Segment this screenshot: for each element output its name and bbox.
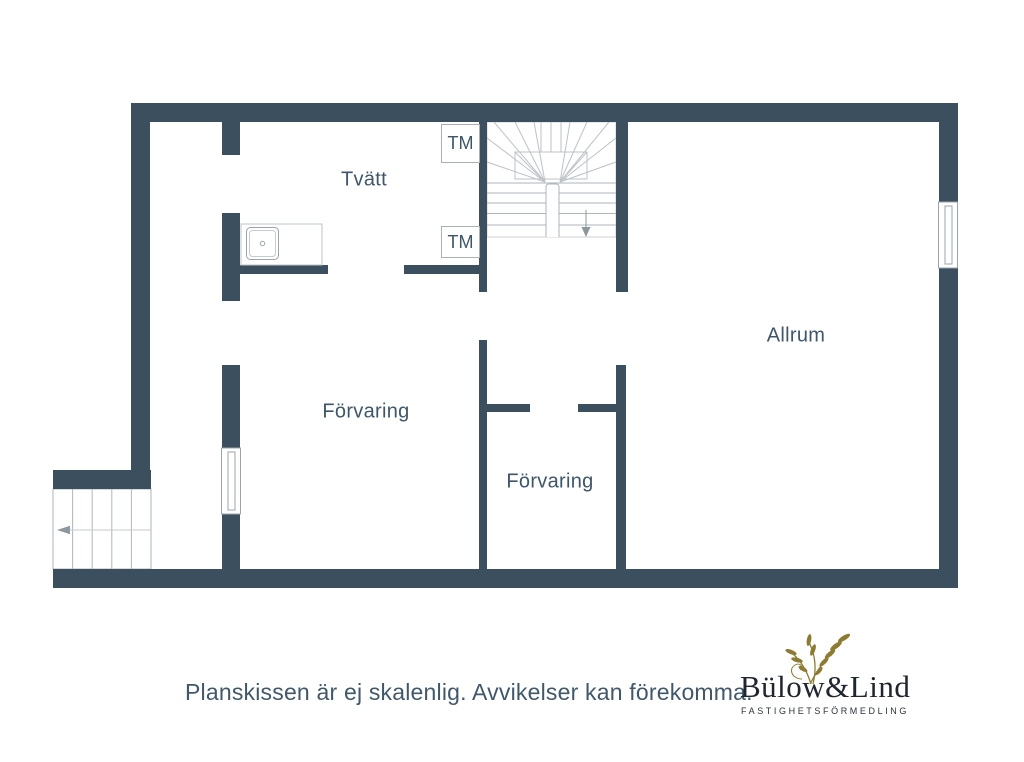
wall-storage-right bbox=[616, 365, 626, 569]
wall-stairwell-left bbox=[479, 122, 487, 292]
room-label-allrum: Allrum bbox=[767, 325, 825, 348]
wall-storage-stub-left bbox=[487, 404, 530, 412]
wall-left bbox=[131, 122, 150, 470]
exterior-staircase bbox=[53, 489, 151, 569]
stair-divider bbox=[546, 184, 559, 237]
wall-below-sink bbox=[222, 265, 328, 274]
wall-bottom bbox=[53, 569, 958, 588]
laundry-sink bbox=[241, 224, 322, 265]
brand-logo: Bülow&Lind FASTIGHETSFÖRMEDLING bbox=[738, 626, 898, 724]
brand-tagline: FASTIGHETSFÖRMEDLING bbox=[741, 706, 897, 716]
wall-right-lower bbox=[939, 268, 958, 569]
window-symbol-right bbox=[939, 202, 958, 268]
wall-inner-left-1 bbox=[222, 213, 240, 301]
window-symbol-left bbox=[222, 448, 241, 514]
wall-right-upper bbox=[939, 122, 958, 202]
wall-inner-left-2 bbox=[222, 365, 240, 448]
washing-machine-label: TM bbox=[448, 133, 474, 154]
room-label-tvatt: Tvätt bbox=[341, 169, 387, 192]
room-label-forvaring-middle: Förvaring bbox=[506, 471, 593, 494]
wall-inner-left-3 bbox=[222, 514, 240, 569]
brand-name: Bülow&Lind bbox=[740, 669, 896, 705]
wall-left-of-stairs bbox=[404, 265, 480, 274]
wall-top bbox=[131, 103, 958, 122]
main-staircase bbox=[487, 122, 616, 237]
washing-machine-label: TM bbox=[448, 232, 474, 253]
disclaimer-text: Planskissen är ej skalenlig. Avvikelser … bbox=[185, 679, 753, 706]
wall-ext-stair bbox=[53, 470, 151, 489]
wall-stairwell-right bbox=[616, 122, 628, 292]
floorplan-page: Tvätt Allrum Förvaring Förvaring TM TM P… bbox=[0, 0, 1024, 762]
washing-machine-top: TM bbox=[441, 124, 480, 163]
wall-storage-stub-right bbox=[578, 404, 616, 412]
room-label-forvaring-left: Förvaring bbox=[322, 401, 409, 424]
floorplan-drawing bbox=[0, 0, 1024, 620]
wall-tvatt-stub bbox=[222, 122, 240, 155]
wall-storage-left bbox=[479, 340, 487, 569]
washing-machine-bottom: TM bbox=[441, 226, 480, 258]
